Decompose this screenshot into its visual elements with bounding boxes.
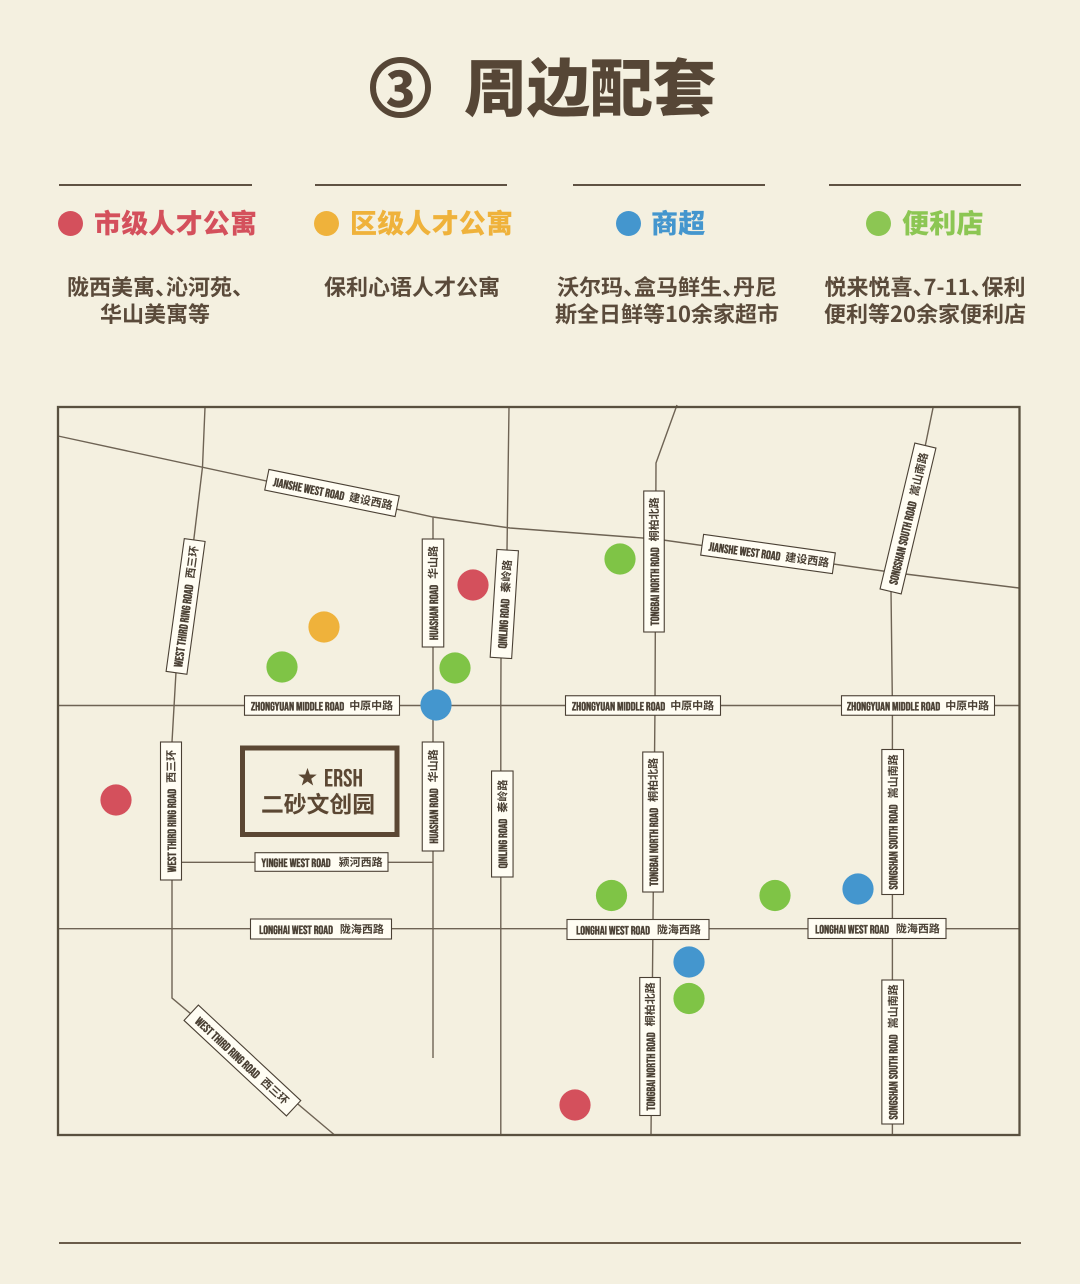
svg-text:LONGHAI WEST ROAD: LONGHAI WEST ROAD [576, 923, 650, 938]
svg-text:华山路: 华山路 [425, 749, 441, 782]
svg-text:QINLING ROAD: QINLING ROAD [495, 598, 513, 649]
svg-text:ZHONGYUAN MIDDLE ROAD: ZHONGYUAN MIDDLE ROAD [572, 699, 666, 714]
svg-text:YINGHE WEST ROAD: YINGHE WEST ROAD [261, 856, 330, 871]
svg-text:WEST THIRD RING ROAD: WEST THIRD RING ROAD [192, 1014, 263, 1082]
svg-text:陇海西路: 陇海西路 [896, 921, 940, 937]
svg-text:QINLING ROAD: QINLING ROAD [496, 819, 511, 869]
svg-text:ZHONGYUAN MIDDLE ROAD: ZHONGYUAN MIDDLE ROAD [251, 699, 345, 714]
svg-text:TONGBAI NORTH ROAD: TONGBAI NORTH ROAD [644, 1032, 659, 1110]
svg-text:SONGSHAN SOUTH ROAD: SONGSHAN SOUTH ROAD [887, 1034, 902, 1119]
svg-text:二砂文创园: 二砂文创园 [261, 786, 375, 820]
svg-text:陇海西路: 陇海西路 [340, 921, 384, 937]
svg-text:西三环: 西三环 [163, 750, 179, 783]
svg-text:WEST THIRD RING ROAD: WEST THIRD RING ROAD [165, 789, 180, 872]
svg-text:秦岭路: 秦岭路 [495, 780, 511, 813]
svg-text:SONGSHAN SOUTH ROAD: SONGSHAN SOUTH ROAD [887, 804, 902, 889]
svg-text:嵩山南路: 嵩山南路 [885, 984, 901, 1028]
svg-text:华山路: 华山路 [425, 546, 441, 579]
svg-text:嵩山南路: 嵩山南路 [885, 754, 901, 798]
svg-text:桐柏北路: 桐柏北路 [645, 758, 661, 802]
svg-text:HUASHAN ROAD: HUASHAN ROAD [427, 585, 442, 640]
svg-text:TONGBAI NORTH ROAD: TONGBAI NORTH ROAD [648, 547, 663, 625]
svg-text:中原中路: 中原中路 [670, 698, 714, 714]
svg-text:LONGHAI WEST ROAD: LONGHAI WEST ROAD [815, 922, 889, 937]
svg-text:HUASHAN ROAD: HUASHAN ROAD [427, 788, 442, 843]
svg-text:秦岭路: 秦岭路 [497, 559, 515, 593]
svg-text:颍河西路: 颍河西路 [339, 854, 383, 870]
svg-text:TONGBAI NORTH ROAD: TONGBAI NORTH ROAD [647, 808, 662, 886]
svg-text:桐柏北路: 桐柏北路 [646, 497, 662, 541]
svg-text:中原中路: 中原中路 [945, 698, 989, 714]
svg-text:陇海西路: 陇海西路 [657, 922, 701, 938]
svg-text:LONGHAI WEST ROAD: LONGHAI WEST ROAD [259, 923, 333, 938]
svg-text:桐柏北路: 桐柏北路 [642, 982, 658, 1026]
svg-text:中原中路: 中原中路 [349, 698, 393, 714]
svg-text:ZHONGYUAN MIDDLE ROAD: ZHONGYUAN MIDDLE ROAD [847, 699, 941, 714]
